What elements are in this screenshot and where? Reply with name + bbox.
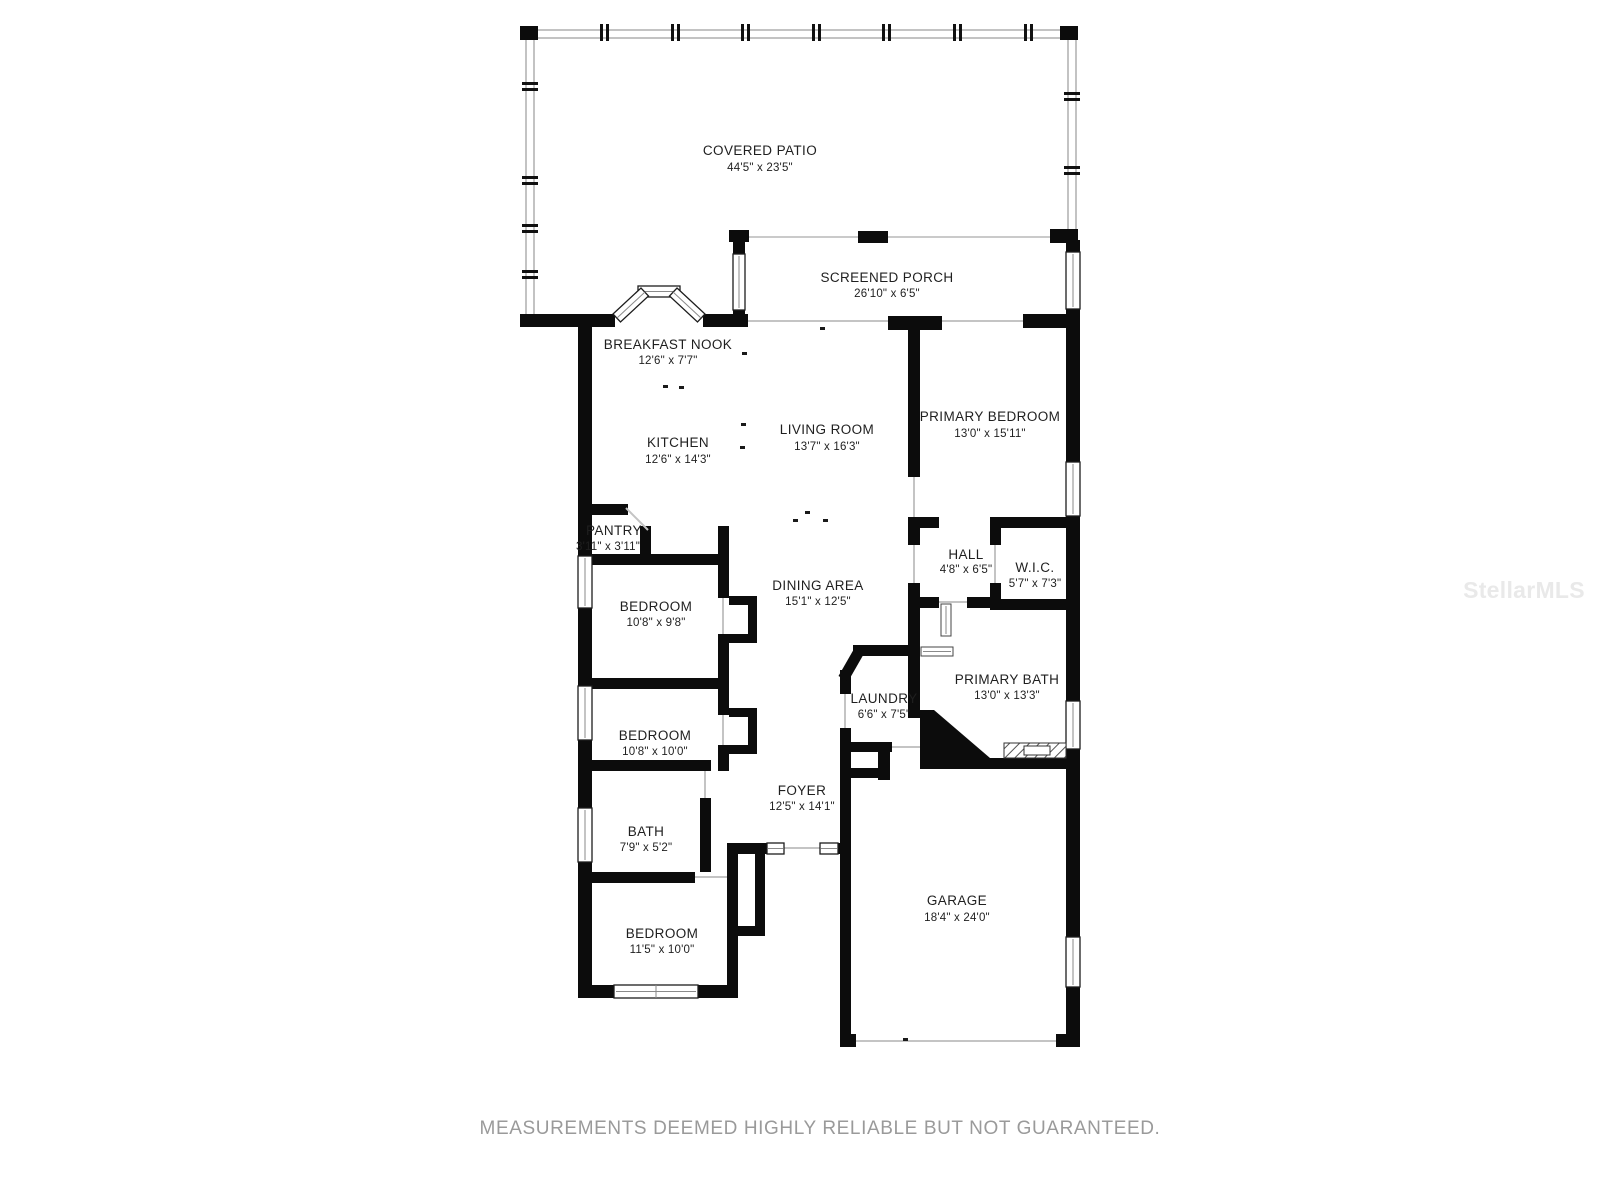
wall-segment (908, 517, 939, 528)
wall-segment (729, 634, 757, 643)
wall-segment (729, 843, 769, 854)
room-label-dining-area: DINING AREA (772, 578, 863, 593)
room-label-wic: W.I.C. (1015, 560, 1054, 575)
wall-segment (700, 798, 711, 872)
closet-shelf-icon (921, 647, 953, 656)
room-dims-wic: 5'7" x 7'3" (1009, 578, 1061, 590)
wall-segment (578, 678, 729, 689)
wall-segment (578, 872, 695, 883)
wall-segment (578, 314, 592, 997)
room-label-primary-bath: PRIMARY BATH (955, 672, 1060, 687)
room-label-bedroom-1: BEDROOM (620, 599, 693, 614)
room-dims-pantry: 3'11" x 3'11" (576, 541, 640, 553)
wall-segment (848, 768, 890, 778)
wall-segment (990, 517, 1080, 528)
room-label-breakfast-nook: BREAKFAST NOOK (604, 337, 732, 352)
room-label-pantry: PANTRY (586, 523, 642, 538)
room-dims-covered-patio: 44'5" x 23'5" (727, 162, 793, 174)
room-dims-bedroom-1: 10'8" x 9'8" (626, 617, 685, 629)
window-symbol (767, 843, 784, 854)
floor-plan-page: COVERED PATIO 44'5" x 23'5" SCREENED POR… (0, 0, 1600, 1200)
room-label-bedroom-3: BEDROOM (626, 926, 699, 941)
wall-segment (1056, 1034, 1080, 1047)
wall-segment (718, 689, 729, 715)
wall-segment (888, 316, 942, 330)
room-label-living-room: LIVING ROOM (780, 422, 874, 437)
wall-segment (990, 599, 1080, 610)
wall-segment (578, 760, 711, 771)
room-dims-laundry: 6'6" x 7'5" (858, 709, 910, 721)
window-symbol (578, 808, 592, 862)
wall-segment (920, 758, 1080, 769)
room-dims-foyer: 12'5" x 14'1" (769, 801, 835, 813)
room-dims-dining-area: 15'1" x 12'5" (785, 596, 851, 608)
shower-tub-icon (1004, 743, 1066, 758)
wall-segment (729, 745, 757, 754)
wall-diagonal-mass (920, 710, 990, 758)
room-label-covered-patio: COVERED PATIO (703, 143, 817, 158)
wall-segment (718, 526, 729, 598)
room-dims-primary-bedroom: 13'0" x 15'11" (954, 428, 1025, 440)
watermark-text: StellarMLS (1463, 577, 1585, 603)
disclaimer-text: MEASUREMENTS DEEMED HIGHLY RELIABLE BUT … (480, 1118, 1161, 1139)
wall-segment (1066, 752, 1080, 1047)
window-symbol (1066, 252, 1080, 309)
screen-corner-post (1060, 26, 1078, 40)
wall-segment (718, 634, 729, 678)
wall-chamfer (846, 653, 858, 674)
room-label-bedroom-2: BEDROOM (619, 728, 692, 743)
wall-segment (727, 843, 738, 998)
room-label-screened-porch: SCREENED PORCH (820, 270, 953, 285)
window-symbol (733, 254, 745, 310)
room-dims-primary-bath: 13'0" x 13'3" (974, 690, 1040, 702)
window-symbol (578, 556, 592, 608)
room-label-laundry: LAUNDRY (850, 691, 917, 706)
room-dims-hall: 4'8" x 6'5" (940, 564, 992, 576)
wall-segment (755, 852, 765, 934)
room-label-bath: BATH (628, 824, 665, 839)
room-dims-bath: 7'9" x 5'2" (620, 842, 672, 854)
room-dims-screened-porch: 26'10" x 6'5" (854, 288, 920, 300)
double-window-symbol (614, 985, 698, 998)
room-label-garage: GARAGE (927, 893, 987, 908)
window-symbol (578, 686, 592, 740)
window-symbol (1066, 937, 1080, 987)
room-dims-garage: 18'4" x 24'0" (924, 912, 990, 924)
room-dims-bedroom-2: 10'8" x 10'0" (622, 746, 688, 758)
wall-segment (727, 926, 765, 936)
screen-wall-segment (526, 30, 534, 318)
screen-corner-post (520, 26, 538, 40)
closet-shelf-icon (941, 604, 951, 636)
room-label-kitchen: KITCHEN (647, 435, 709, 450)
wall-segment (590, 504, 628, 515)
bay-window-symbol (670, 288, 706, 322)
wall-segment (718, 745, 729, 771)
wall-segment (578, 554, 729, 565)
wall-segment (1066, 314, 1080, 752)
window-symbol (1066, 701, 1080, 749)
screen-wall-segment (1068, 30, 1076, 242)
wall-segment (858, 231, 888, 243)
room-dims-living-room: 13'7" x 16'3" (794, 441, 860, 453)
room-dims-breakfast-nook: 12'6" x 7'7" (638, 355, 697, 367)
wall-segment (840, 1034, 856, 1047)
wall-segment (920, 597, 939, 608)
window-symbol (820, 843, 838, 854)
patio-screen-walls (520, 26, 1078, 318)
room-label-primary-bedroom: PRIMARY BEDROOM (920, 409, 1061, 424)
room-dims-bedroom-3: 11'5" x 10'0" (630, 944, 695, 956)
bay-window-symbol (613, 288, 649, 322)
wall-segment (908, 330, 920, 477)
wall-segment (703, 314, 748, 327)
room-label-foyer: FOYER (778, 783, 827, 798)
wall-segment (520, 314, 615, 327)
room-dims-kitchen: 12'6" x 14'3" (645, 454, 711, 466)
floor-plan-drawing: COVERED PATIO 44'5" x 23'5" SCREENED POR… (0, 0, 1600, 1200)
room-label-hall: HALL (948, 547, 983, 562)
wall-segment (967, 597, 990, 608)
window-symbol (1066, 462, 1080, 516)
